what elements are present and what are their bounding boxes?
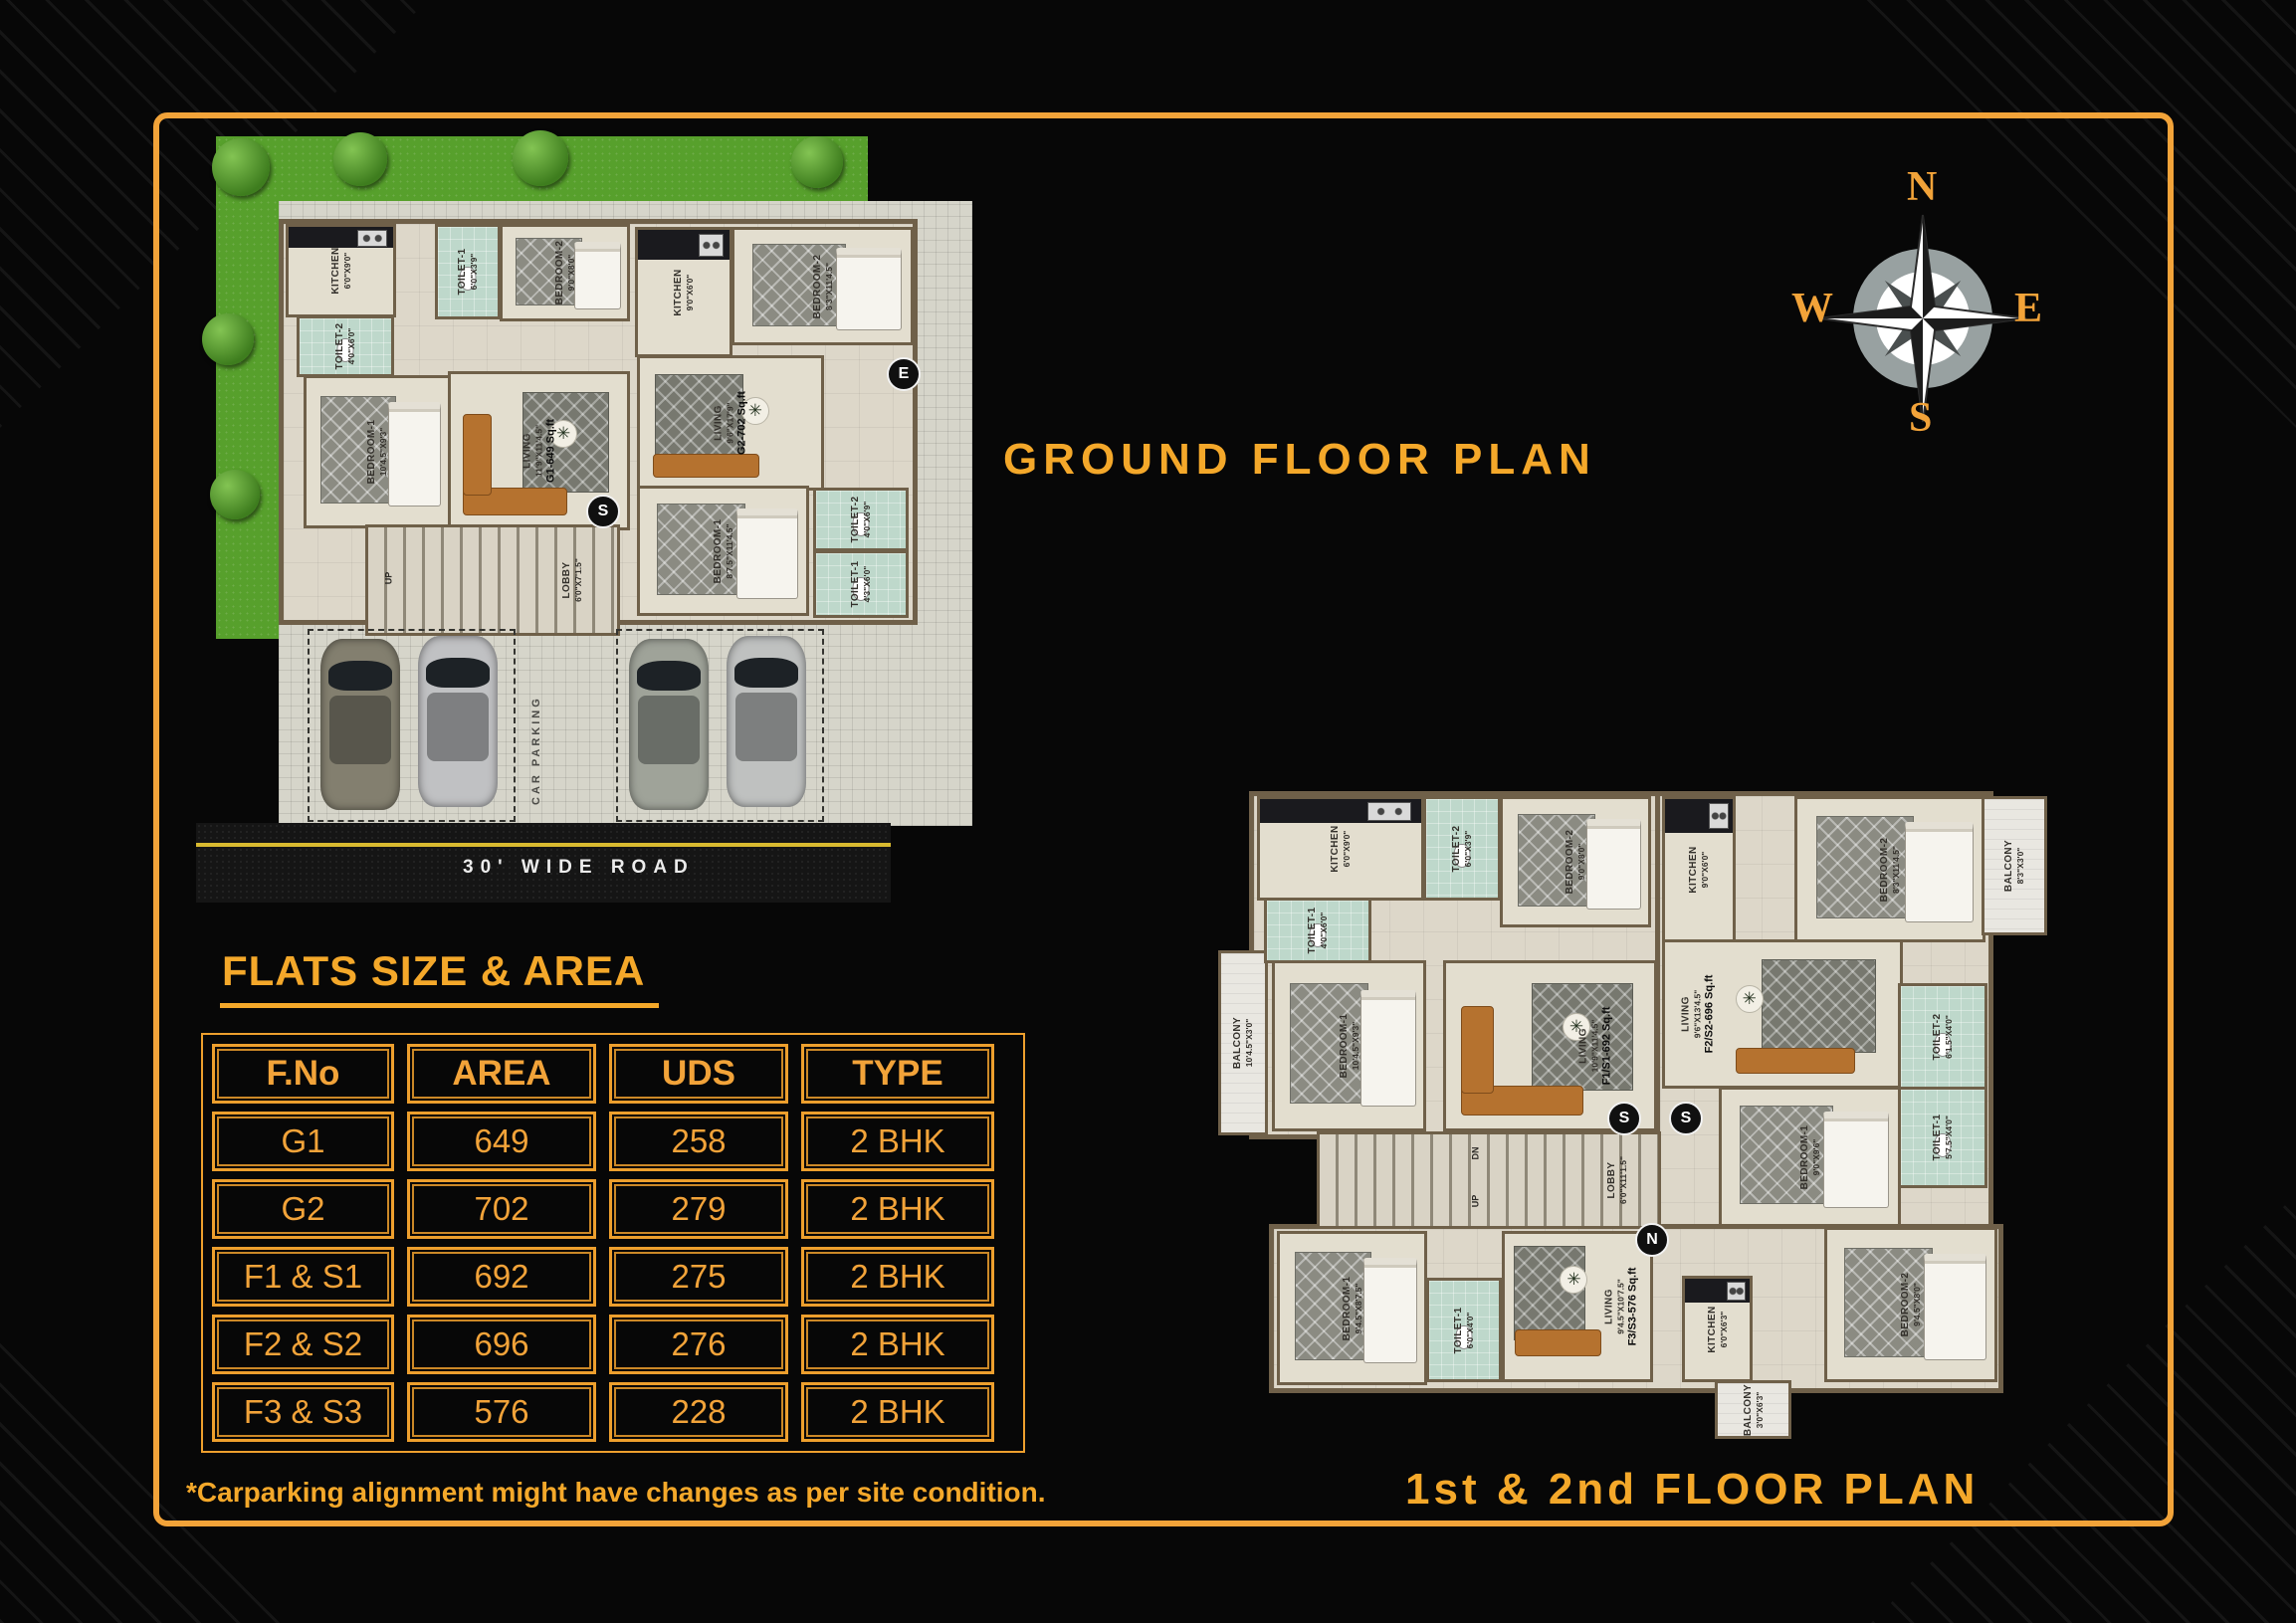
room-label: TOILET-2 — [334, 323, 345, 370]
room-dims: 10'4.5"X3'0" — [1244, 1019, 1254, 1068]
room-f2-toilet1: TOILET-15'7.5"X4'0" — [1898, 1087, 1987, 1188]
tree-icon — [513, 130, 568, 186]
cell-uds: 275 — [609, 1247, 788, 1307]
room-dims: 6'0"X6'3" — [1719, 1311, 1729, 1347]
car-windshield — [328, 661, 392, 690]
room-dims: 10'9"X11'4.5" — [1590, 1020, 1600, 1073]
sofa — [463, 414, 492, 496]
room-g2-bedroom1: BEDROOM-18'7.5"X11'4.5" — [637, 486, 809, 616]
room-dims: 6'0"X7'1.5" — [573, 558, 583, 602]
cell-area: 696 — [407, 1315, 596, 1374]
sofa — [653, 454, 760, 478]
room-label: LOBBY — [1606, 1162, 1617, 1199]
room-f1-bedroom2: BEDROOM-29'0"X8'0" — [1500, 796, 1651, 927]
room-dims: 9'4.5"X8'0" — [1912, 1283, 1922, 1326]
room-label: TOILET-1 — [1453, 1307, 1464, 1353]
east-entry-marker: E — [887, 357, 921, 391]
carparking-note: *Carparking alignment might have changes… — [186, 1477, 1046, 1509]
upper-lobby-stairs: DN UP LOBBY6'0"X11'1.5" — [1317, 1131, 1661, 1229]
bed — [574, 242, 621, 310]
car-top-view — [727, 636, 806, 807]
room-dims: 9'0"X6'0" — [1700, 851, 1710, 888]
flat-area-label: F1/S1-692 Sq.ft — [1601, 1007, 1613, 1086]
room-label: LIVING — [1681, 996, 1692, 1032]
col-header-fno: F.No — [212, 1044, 394, 1104]
room-f2-kitchen: KITCHEN9'0"X6'0" — [1662, 796, 1736, 942]
room-label: BEDROOM-1 — [713, 518, 724, 583]
cell-area: 649 — [407, 1112, 596, 1171]
stove-icon — [699, 234, 725, 258]
tree-icon — [333, 132, 387, 186]
bed — [1905, 822, 1974, 922]
south-entry-marker: S — [1669, 1102, 1703, 1135]
kitchen-counter — [1685, 1279, 1750, 1303]
room-dims: 6'0"X3'9" — [469, 254, 479, 291]
room-g2-kitchen: KITCHEN9'0"X6'0" — [635, 227, 732, 357]
brochure-page: { "titles": { "ground": "GROUND FLOOR PL… — [0, 0, 2296, 1623]
room-label: BEDROOM-2 — [1900, 1273, 1911, 1337]
room-f2-toilet2: TOILET-26'1.5"X4'0" — [1898, 983, 1987, 1090]
room-f3-balcony: BALCONY3'0"X6'3" — [1715, 1380, 1791, 1439]
room-dims: 9'4.5"X10'7.5" — [1615, 1279, 1625, 1334]
first-second-floor-plan: BALCONY10'4.5"X3'0" KITCHEN6'0"X9'0" TOI… — [1209, 781, 2100, 1468]
bed — [836, 248, 902, 330]
room-f1-bedroom1: BEDROOM-110'4.5"X9'3" — [1272, 960, 1426, 1131]
car-windshield — [734, 658, 798, 687]
room-f1-toilet2: TOILET-26'0"X3'9" — [1423, 796, 1501, 901]
car-windshield — [637, 661, 701, 690]
room-label: TOILET-1 — [850, 561, 861, 608]
cell-type: 2 BHK — [801, 1179, 994, 1239]
room-f2-balcony: BALCONY8'3"X3'0" — [1982, 796, 2047, 935]
room-label: KITCHEN — [673, 269, 684, 315]
room-dims: 3'0"X6'3" — [1755, 1391, 1765, 1428]
car-windshield — [426, 658, 490, 687]
ground-floor-plan-title: GROUND FLOOR PLAN — [1003, 435, 1596, 485]
table-header-row: F.No AREA UDS TYPE — [212, 1044, 1014, 1104]
room-f3-living: ✳ LIVING9'4.5"X10'7.5"F3/S3-576 Sq.ft — [1502, 1231, 1653, 1382]
room-label: LIVING — [522, 433, 532, 469]
car-top-view — [629, 639, 709, 810]
room-f3-bedroom1: BEDROOM-19'4.5"X8'7.5" — [1277, 1231, 1427, 1385]
room-label: BEDROOM-2 — [1565, 830, 1575, 895]
cell-fno: F2 & S2 — [212, 1315, 394, 1374]
compass-north-label: N — [1907, 163, 1937, 211]
table-row: G2 702 279 2 BHK — [212, 1179, 1014, 1239]
stove-icon — [1727, 1282, 1746, 1301]
room-dims: 11'9"X11'4.5" — [533, 425, 543, 477]
room-dims: 4'3"X6'0" — [862, 566, 872, 603]
car-roof — [735, 693, 797, 761]
room-f3-toilet1: TOILET-16'0"X4'0" — [1426, 1278, 1502, 1382]
bed — [1924, 1254, 1985, 1360]
cell-fno: G1 — [212, 1112, 394, 1171]
car-roof — [427, 693, 489, 761]
room-g1-toilet1: TOILET-16'0"X3'9" — [435, 224, 501, 319]
room-label: LIVING — [1603, 1289, 1614, 1324]
cell-type: 2 BHK — [801, 1382, 994, 1442]
bed — [1586, 819, 1641, 910]
room-dims: 6'0"X4'0" — [1465, 1312, 1475, 1348]
room-dims: 8'7.5"X11'4.5" — [725, 523, 734, 578]
grass-strip-left — [216, 136, 279, 639]
room-dims: 8'3"X11'4.5" — [824, 262, 834, 309]
room-f1-kitchen: KITCHEN6'0"X9'0" — [1257, 796, 1424, 901]
bed — [736, 508, 798, 599]
room-label: KITCHEN — [330, 247, 341, 294]
room-dims: 6'0"X9'0" — [342, 253, 352, 290]
room-label: KITCHEN — [1330, 825, 1341, 872]
room-g1-toilet2: TOILET-24'0"X6'0" — [297, 315, 394, 377]
room-dims: 4'0"X6'0" — [346, 328, 356, 365]
compass-east-label: E — [2014, 285, 2042, 332]
room-g1-bedroom1: BEDROOM-110'4.5"X9'3" — [304, 375, 451, 528]
room-g2-living: ✳ LIVING9'6"X17'9"G2-702 Sq.ft — [637, 355, 824, 491]
room-g1-bedroom2: BEDROOM-29'0"X8'0" — [500, 224, 630, 321]
room-dims: 4'0"X6'0" — [1319, 913, 1329, 949]
kitchen-counter — [289, 227, 393, 248]
stove-icon — [1367, 802, 1411, 821]
room-label: BEDROOM-2 — [812, 254, 823, 318]
kitchen-counter — [1260, 799, 1421, 823]
room-label: BALCONY — [1232, 1017, 1243, 1069]
bed — [1360, 990, 1416, 1108]
room-f1-balcony: BALCONY10'4.5"X3'0" — [1218, 950, 1268, 1135]
room-label: TOILET-1 — [1307, 908, 1318, 954]
room-dims: 10'4.5"X9'3" — [378, 428, 388, 477]
flat-area-label: F2/S2-696 Sq.ft — [1704, 975, 1716, 1054]
car-top-view — [320, 639, 400, 810]
stairs-up-label: UP — [1470, 1195, 1480, 1208]
south-entry-marker: S — [586, 495, 620, 528]
bed — [1363, 1258, 1417, 1363]
cell-area: 692 — [407, 1247, 596, 1307]
room-label: BEDROOM-1 — [1799, 1124, 1810, 1189]
stove-icon — [357, 230, 386, 247]
room-g2-bedroom2: BEDROOM-28'3"X11'4.5" — [731, 227, 914, 345]
room-label: LIVING — [714, 405, 725, 441]
cell-type: 2 BHK — [801, 1247, 994, 1307]
table-row: G1 649 258 2 BHK — [212, 1112, 1014, 1171]
room-label: TOILET-2 — [850, 497, 861, 543]
stairs-up-label: UP — [383, 572, 393, 585]
ceiling-fan-icon: ✳ — [1736, 985, 1764, 1013]
room-dims: 5'7.5"X4'0" — [1944, 1116, 1954, 1159]
table-row: F1 & S1 692 275 2 BHK — [212, 1247, 1014, 1307]
room-label: LOBBY — [561, 562, 572, 599]
stairs-dn-label: DN — [1471, 1147, 1481, 1160]
table-row: F2 & S2 696 276 2 BHK — [212, 1315, 1014, 1374]
room-g2-toilet2: TOILET-24'0"X6'9" — [813, 488, 909, 551]
sofa — [1461, 1006, 1494, 1094]
room-f3-bedroom2: BEDROOM-29'4.5"X8'0" — [1824, 1227, 1997, 1382]
road: 30' WIDE ROAD — [196, 823, 891, 903]
room-dims: 9'0"X9'6" — [1811, 1138, 1821, 1175]
rug — [1762, 959, 1876, 1053]
car-parking-label: CAR PARKING — [530, 666, 542, 805]
room-dims: 8'3"X3'0" — [2015, 848, 2025, 885]
room-f1-toilet1: TOILET-14'0"X6'0" — [1264, 898, 1371, 963]
room-dims: 9'6"X13'4.5" — [1693, 990, 1703, 1039]
kitchen-counter — [1665, 799, 1733, 833]
cell-uds: 258 — [609, 1112, 788, 1171]
room-label: TOILET-1 — [1932, 1115, 1943, 1161]
room-label: TOILET-2 — [1451, 825, 1462, 872]
room-dims: 6'0"X9'0" — [1342, 830, 1352, 867]
cell-uds: 276 — [609, 1315, 788, 1374]
flats-size-area-title: FLATS SIZE & AREA — [220, 947, 659, 1008]
room-label: BEDROOM-2 — [1879, 837, 1890, 902]
flat-area-label: G1-649 Sq.ft — [544, 419, 556, 483]
room-label: BEDROOM-1 — [366, 420, 377, 485]
cell-fno: G2 — [212, 1179, 394, 1239]
road-center-line — [196, 843, 891, 847]
cell-type: 2 BHK — [801, 1315, 994, 1374]
stove-icon — [1709, 803, 1729, 829]
tree-icon — [210, 470, 260, 519]
room-label: KITCHEN — [1688, 846, 1699, 893]
room-label: LIVING — [1578, 1028, 1589, 1064]
cell-type: 2 BHK — [801, 1112, 994, 1171]
room-dims: 6'1.5"X4'0" — [1944, 1015, 1954, 1059]
room-label: BEDROOM-2 — [554, 241, 565, 305]
cell-fno: F3 & S3 — [212, 1382, 394, 1442]
bed — [388, 402, 441, 507]
cell-fno: F1 & S1 — [212, 1247, 394, 1307]
first-second-floor-plan-title: 1st & 2nd FLOOR PLAN — [1405, 1465, 1979, 1515]
tree-icon — [791, 136, 843, 188]
sofa — [1736, 1048, 1855, 1074]
room-dims: 8'3"X11'4.5" — [1891, 845, 1901, 893]
sofa — [1515, 1329, 1601, 1356]
room-label: BALCONY — [1743, 1383, 1754, 1435]
bed — [1823, 1112, 1889, 1208]
room-dims: 10'4.5"X9'3" — [1351, 1022, 1360, 1071]
col-header-uds: UDS — [609, 1044, 788, 1104]
tree-icon — [212, 138, 270, 196]
room-dims: 9'0"X8'0" — [1576, 844, 1586, 881]
ground-floor-plan: KITCHEN6'0"X9'0" TOILET-16'0"X3'9" BEDRO… — [186, 126, 1025, 907]
south-entry-marker: S — [1607, 1102, 1641, 1135]
room-label: BALCONY — [2003, 840, 2014, 892]
room-label: TOILET-2 — [1932, 1013, 1943, 1060]
flats-table: F.No AREA UDS TYPE G1 649 258 2 BHK G2 7… — [201, 1033, 1025, 1453]
cell-uds: 228 — [609, 1382, 788, 1442]
car-top-view — [418, 636, 498, 807]
kitchen-counter — [638, 230, 730, 260]
table-row: F3 & S3 576 228 2 BHK — [212, 1382, 1014, 1442]
room-dims: 6'0"X3'9" — [1463, 830, 1473, 867]
compass-rose: N E S W — [1791, 169, 2054, 444]
room-dims: 4'0"X6'9" — [862, 502, 872, 538]
room-label: BEDROOM-1 — [1339, 1014, 1350, 1079]
compass-west-label: W — [1791, 285, 1833, 332]
room-f3-kitchen: KITCHEN6'0"X6'3" — [1682, 1276, 1753, 1382]
room-label: BEDROOM-1 — [1342, 1276, 1353, 1340]
car-roof — [638, 696, 700, 764]
tree-icon — [202, 313, 254, 365]
room-label: TOILET-1 — [457, 249, 468, 296]
car-roof — [329, 696, 391, 764]
room-dims: 9'4.5"X8'7.5" — [1354, 1283, 1363, 1333]
road-label: 30' WIDE ROAD — [463, 857, 695, 879]
col-header-area: AREA — [407, 1044, 596, 1104]
room-dims: 9'0"X6'0" — [685, 274, 695, 310]
cell-area: 576 — [407, 1382, 596, 1442]
room-label: KITCHEN — [1707, 1306, 1718, 1352]
room-dims: 9'0"X8'0" — [566, 255, 576, 292]
room-dims: 9'6"X17'9" — [726, 402, 735, 443]
flat-area-label: F3/S3-576 Sq.ft — [1626, 1268, 1638, 1346]
room-f2-bedroom2: BEDROOM-28'3"X11'4.5" — [1794, 796, 1985, 942]
flat-area-label: G2-702 Sq.ft — [736, 391, 748, 455]
cell-area: 702 — [407, 1179, 596, 1239]
room-g2-toilet1: TOILET-14'3"X6'0" — [813, 550, 909, 618]
room-f2-bedroom1: BEDROOM-19'0"X9'6" — [1719, 1087, 1901, 1227]
compass-south-label: S — [1909, 394, 1932, 442]
north-entry-marker: N — [1635, 1223, 1669, 1257]
col-header-type: TYPE — [801, 1044, 994, 1104]
room-g1-kitchen: KITCHEN6'0"X9'0" — [286, 224, 396, 317]
ground-lobby-stairs: UP LOBBY6'0"X7'1.5" — [365, 524, 620, 636]
room-dims: 6'0"X11'1.5" — [1618, 1156, 1628, 1204]
cell-uds: 279 — [609, 1179, 788, 1239]
room-f2-living: ✳ LIVING9'6"X13'4.5"F2/S2-696 Sq.ft — [1662, 939, 1903, 1089]
